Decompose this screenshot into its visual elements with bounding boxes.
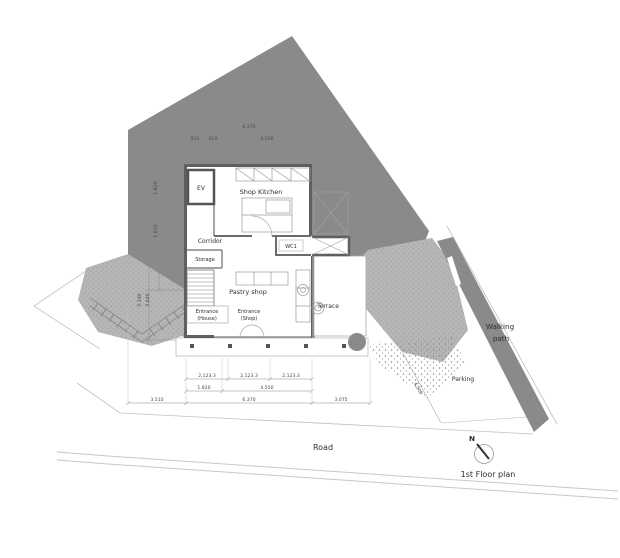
parking-label: Parking [452,376,474,383]
deck-base [176,338,368,356]
room-label-entrance-house-2: (House) [197,316,217,322]
dim-bottom-r1-2: 2,123.3 [240,373,258,379]
room-label-entrance-house-1: Entrance [196,309,218,315]
floor-plan-drawing: EV Shop Kitchen Corridor Storage WC1 Pas… [0,0,620,558]
walking-path-label-2: path [493,334,509,343]
floor-plan-canvas: EV Shop Kitchen Corridor Storage WC1 Pas… [0,0,620,558]
room-label-pastry-shop: Pastry shop [229,288,267,296]
terrace-base [314,256,366,336]
lot-boundary-left-a [34,271,86,306]
dim-top-total: 6.370 [242,124,255,130]
dim-bottom-r3-3: 3.075 [334,397,347,403]
dim-bottom-r1-3: 2,123.3 [282,373,300,379]
dim-bottom-r2-1: 1.820 [197,385,210,391]
road-label: Road [313,443,333,452]
dim-bottom-r3-1: 3.510 [150,397,163,403]
dim-left-seg2: 1.820 [153,224,159,237]
dim-bottom-r1-1: 2,123.3 [198,373,216,379]
tree-blob [348,333,366,351]
dim-left-bottom1: 5.190 [137,293,143,306]
room-label-entrance-shop-1: Entrance [238,309,260,315]
walking-path-label-1: Walking [486,322,514,331]
room-label-shop-kitchen: Shop Kitchen [240,188,283,196]
room-label-corridor: Corridor [198,238,223,245]
dim-bottom-r3-2: 6.370 [242,397,255,403]
room-label-ev: EV [197,185,206,192]
dim-top-seg1: 910 [191,136,200,142]
room-label-terrace: Terrace [316,303,339,310]
road-line-1 [57,452,618,491]
north-needle [477,444,489,459]
north-label: N [469,434,475,443]
plan-title: 1st Floor plan [461,470,516,479]
dim-top-seg2: 910 [209,136,218,142]
room-label-wc1: WC1 [285,244,297,250]
dim-left-bottom2: 3.640 [145,293,151,306]
parking-edge-line [442,417,527,423]
room-label-storage: Storage [195,257,215,263]
lot-boundary-bottom [77,383,533,434]
dim-left-seg1: 1.820 [153,181,159,194]
road-line-2 [57,460,618,499]
dim-bottom-r2-2: 4.550 [260,385,273,391]
room-label-entrance-shop-2: (Shop) [241,316,258,322]
dim-top-seg3: 4.550 [260,136,273,142]
